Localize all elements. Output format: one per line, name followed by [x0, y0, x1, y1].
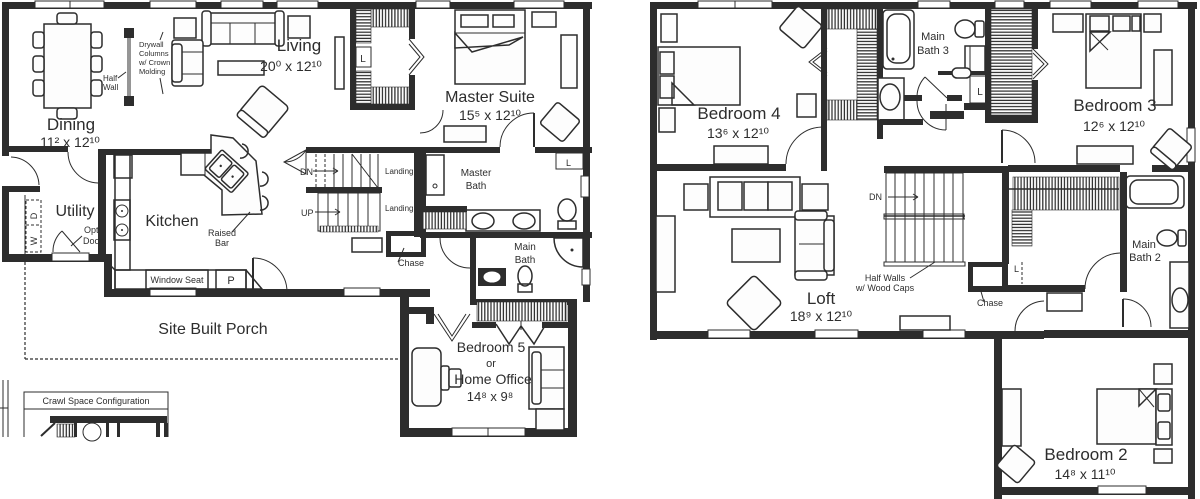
- svg-text:Main: Main: [514, 242, 536, 253]
- svg-text:Columns: Columns: [139, 49, 169, 58]
- svg-text:Landing: Landing: [385, 167, 413, 176]
- svg-text:14⁸ x 11¹⁰: 14⁸ x 11¹⁰: [1054, 466, 1115, 482]
- svg-text:Half Walls: Half Walls: [865, 273, 906, 283]
- svg-text:Landing: Landing: [385, 204, 413, 213]
- svg-text:Bath 3: Bath 3: [917, 45, 949, 57]
- svg-text:Molding: Molding: [139, 67, 165, 76]
- svg-text:Raised: Raised: [208, 228, 236, 238]
- svg-text:Kitchen: Kitchen: [145, 213, 198, 230]
- svg-text:Bar: Bar: [215, 238, 229, 248]
- svg-text:14⁸ x 9⁸: 14⁸ x 9⁸: [467, 389, 513, 404]
- svg-text:DN: DN: [869, 192, 882, 202]
- svg-text:20⁰ x 12¹⁰: 20⁰ x 12¹⁰: [260, 58, 322, 74]
- svg-text:Site Built Porch: Site Built Porch: [158, 321, 267, 338]
- svg-text:Half: Half: [103, 74, 118, 83]
- svg-text:Dining: Dining: [47, 115, 95, 134]
- svg-text:w/ Wood Caps: w/ Wood Caps: [855, 283, 915, 293]
- svg-text:L: L: [1014, 264, 1019, 274]
- svg-text:12⁶ x 12¹⁰: 12⁶ x 12¹⁰: [1083, 118, 1145, 134]
- svg-text:P: P: [227, 275, 234, 287]
- svg-text:Bath: Bath: [466, 181, 487, 192]
- svg-text:Home Office: Home Office: [454, 371, 532, 387]
- svg-text:Bath: Bath: [515, 255, 536, 266]
- svg-text:Chase: Chase: [398, 258, 424, 268]
- svg-text:Bedroom 2: Bedroom 2: [1044, 445, 1127, 464]
- svg-text:Opt: Opt: [84, 225, 99, 235]
- svg-text:Wall: Wall: [103, 83, 118, 92]
- svg-text:18⁹ x 12¹⁰: 18⁹ x 12¹⁰: [790, 308, 853, 324]
- svg-text:D: D: [29, 212, 39, 219]
- svg-text:Door: Door: [83, 236, 103, 246]
- svg-text:L: L: [360, 54, 366, 65]
- svg-text:Bedroom 4: Bedroom 4: [697, 104, 780, 123]
- svg-text:or: or: [486, 358, 496, 370]
- svg-text:Bath 2: Bath 2: [1129, 252, 1161, 264]
- svg-text:Master: Master: [461, 168, 492, 179]
- svg-text:Main: Main: [921, 31, 945, 43]
- svg-text:UP: UP: [301, 208, 314, 218]
- svg-text:Bedroom 5: Bedroom 5: [457, 339, 526, 355]
- svg-text:w/ Crown: w/ Crown: [138, 58, 170, 67]
- svg-text:Utility: Utility: [55, 203, 94, 220]
- svg-text:13⁶ x 12¹⁰: 13⁶ x 12¹⁰: [707, 125, 769, 141]
- svg-text:Living: Living: [277, 36, 321, 55]
- svg-text:Loft: Loft: [807, 289, 836, 308]
- svg-text:Bedroom 3: Bedroom 3: [1073, 96, 1156, 115]
- svg-text:11² x 12¹⁰: 11² x 12¹⁰: [40, 134, 100, 150]
- svg-text:Chase: Chase: [977, 298, 1003, 308]
- svg-text:Window Seat: Window Seat: [150, 275, 204, 285]
- svg-text:Master Suite: Master Suite: [445, 89, 535, 106]
- svg-text:Main: Main: [1132, 239, 1156, 251]
- svg-text:W: W: [29, 236, 39, 245]
- svg-text:L: L: [977, 87, 983, 98]
- svg-text:Drywall: Drywall: [139, 40, 164, 49]
- svg-text:L: L: [566, 158, 571, 168]
- svg-text:Crawl Space Configuration: Crawl Space Configuration: [42, 396, 149, 406]
